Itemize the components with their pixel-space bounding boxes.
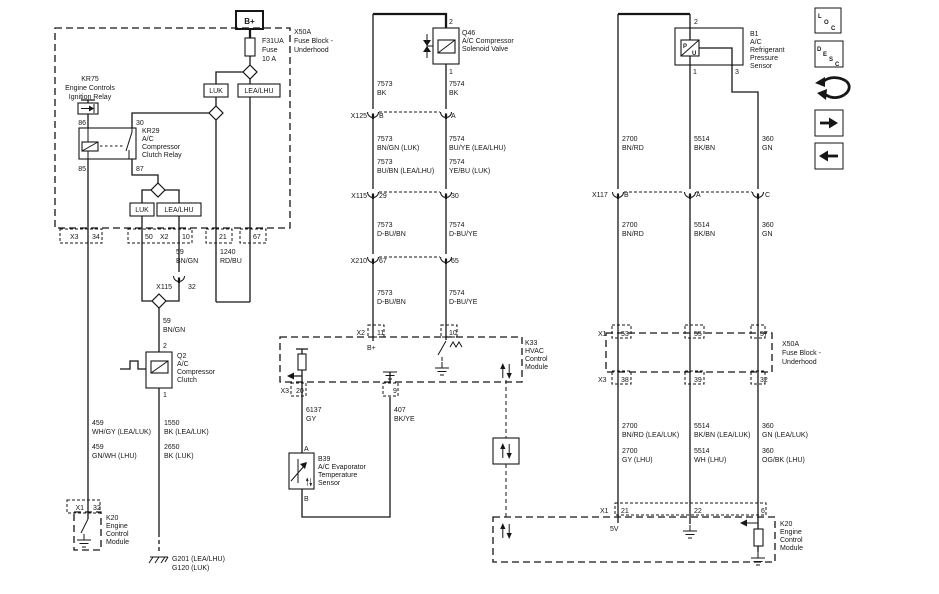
wire-label: BN/GN [176,258,198,265]
wire-label: 2700 [622,136,638,143]
fuse-block-name: X50A [782,341,799,348]
connector-label: X117 [592,192,608,199]
ecm-label: Module [106,539,129,546]
wire-label: BK/BN [694,145,715,152]
b1-label: Sensor [750,63,773,70]
wire-label: 7574 [449,222,465,229]
wire-label: 7574 [449,136,465,143]
hvac-label: Module [525,364,548,371]
connector-pin: 53 [621,331,629,338]
ground-label: G201 (LEA/LHU) [172,556,225,563]
wire-label: 7573 [377,222,393,229]
wire-label: 2700 [622,423,638,430]
ecm-label: Module [780,545,803,552]
wire-label: 2700 [622,448,638,455]
kr29-label: Clutch Relay [142,152,182,159]
wire-label: BU/BN (LEA/LHU) [377,168,434,175]
connector-pin: 29 [379,193,387,200]
fuse-block-name: Underhood [294,47,329,54]
connector-pin: C [765,192,770,199]
connector-pin: 67 [379,258,387,265]
component-pin: 3 [735,69,739,76]
q2-label: Q2 [177,353,186,360]
b1-letter: P [683,44,687,50]
fuse-label: 10 A [262,56,276,63]
connector-label: X1 [598,331,607,338]
connector-pin: A [696,192,701,199]
loc-letter: L [818,14,822,20]
connector-label: X210 [351,258,367,265]
kr29-label: A/C [142,136,154,143]
b1-label: A/C [750,39,762,46]
kr29-label: Compressor [142,144,181,151]
wire-label: 1550 [164,420,180,427]
wire-label: 6137 [306,407,322,414]
connector-pin: B [379,113,384,120]
fuse-label: F31UA [262,38,284,45]
wire-label: 459 [92,444,104,451]
fuse-block-name: Fuse Block - [782,350,822,357]
wire-label: D-BU/BN [377,299,406,306]
connector-pin: X2 [160,234,169,241]
component-pin: A [304,446,309,453]
wire-label: BK [449,90,459,97]
desc-letter: D [817,47,822,53]
wire-label: 407 [394,407,406,414]
hvac-resistor [298,354,306,370]
ecm-resistor [754,529,763,546]
wire-label: BN/RD (LEA/LUK) [622,432,679,439]
wire-label: 59 [176,249,184,256]
connector-pin: 6 [761,508,765,515]
kr75-label: Ignition Relay [69,94,112,101]
b39-label: Sensor [318,480,341,487]
wire-label: GN [762,145,773,152]
connector-pin: 21 [219,234,227,241]
variant-label: LEA/LHU [164,207,193,214]
battery-terminal-label: B+ [244,17,255,26]
connector-label: X3 [598,377,607,384]
connector-pin: 57 [760,331,768,338]
hvac-label: K33 [525,340,538,347]
connector-pin: 32 [93,505,101,512]
kr29-label: KR29 [142,128,160,135]
hvac-label: HVAC [525,348,544,355]
connector-pin: 30 [451,193,459,200]
schematic-canvas: B+ X50A Fuse Block - Underhood F31UA Fus… [0,0,939,594]
wire-label: WH (LHU) [694,457,726,464]
wire-label: 2650 [164,444,180,451]
wire-label: D-BU/YE [449,231,478,238]
connector-pin: 38 [621,377,629,384]
wire-label: 360 [762,222,774,229]
connector-pin: 34 [92,234,100,241]
variant-label: LUK [209,88,223,95]
connector-pin: 39 [694,377,702,384]
wire-label: GY [306,416,316,423]
q46-label: Solenoid Valve [462,46,508,53]
q46-label: A/C Compressor [462,38,514,45]
wire-label: D-BU/BN [377,231,406,238]
component-pin: 2 [694,19,698,26]
wire-label: 459 [92,420,104,427]
wire-label: BK (LUK) [164,453,194,460]
component-pin: 2 [163,343,167,350]
desc-letter: E [823,52,827,58]
wire-label: WH/GY (LEA/LUK) [92,429,151,436]
wire-label: GN (LEA/LUK) [762,432,808,439]
ecm-label: Engine [106,523,128,530]
wire-label: BK/YE [394,416,415,423]
b1-letter: U [692,51,696,57]
loc-letter: C [831,26,836,32]
q2-label: A/C [177,361,189,368]
ecm-label: K20 [780,521,793,528]
relay-pin-label: 30 [136,120,144,127]
wire-label: 1240 [220,249,236,256]
connector-pin: X3 [70,234,79,241]
variant-label: LUK [135,207,149,214]
hvac-label: Control [525,356,548,363]
component-pin: B [304,496,309,503]
component-pin: 1 [693,69,697,76]
desc-letter: C [835,62,840,68]
wire-label: GY (LHU) [622,457,653,464]
wire-label: BK (LEA/LUK) [164,429,209,436]
b39-label: A/C Evaporator [318,464,367,471]
wire-label: 5514 [694,423,710,430]
wire-label: GN/WH (LHU) [92,453,137,460]
connector-pin: 67 [253,234,261,241]
connector-label: X2 [356,330,365,337]
connector-label: X3 [280,388,289,395]
variant-label: LEA/LHU [244,88,273,95]
connector-pin: B [624,192,629,199]
wire-label: 7573 [377,81,393,88]
connector-pin: 21 [621,508,629,515]
canvas-background [0,0,939,594]
fuse-symbol [245,38,255,56]
loc-letter: O [824,20,829,26]
wire-label: 5514 [694,222,710,229]
connector-pin: 32 [760,377,768,384]
wire-label: 5514 [694,136,710,143]
connector-pin: A [451,113,456,120]
q2-label: Compressor [177,369,216,376]
wire-label: 7574 [449,290,465,297]
wire-label: BN/RD [622,231,644,238]
ecm-label: Control [780,537,803,544]
wire-label: BK [377,90,387,97]
wire-label: 5514 [694,448,710,455]
wire-label: 7573 [377,159,393,166]
wire-label: GN [762,231,773,238]
connector-label: X115 [351,193,367,200]
fuse-block-name: X50A [294,29,311,36]
wire-label: 360 [762,136,774,143]
wire-label: BK/BN (LEA/LUK) [694,432,750,439]
relay-pin-label: 85 [78,166,86,173]
ecm-label: Control [106,531,129,538]
b39-label: B39 [318,456,331,463]
connector-pin: 10 [449,330,457,337]
wire-label: BN/GN [163,327,185,334]
wire-label: BU/YE (LEA/LHU) [449,145,506,152]
fuse-block-name: Fuse Block - [294,38,334,45]
wire-label: 7574 [449,159,465,166]
wire-label: 2700 [622,222,638,229]
wire-label: YE/BU (LUK) [449,168,490,175]
b1-label: Refrigerant [750,47,785,54]
connector-pin: 22 [694,508,702,515]
connector-pin: 50 [145,234,153,241]
b1-label: Pressure [750,55,778,62]
wire-label: 360 [762,448,774,455]
wire-label: RD/BU [220,258,242,265]
wire-label: 7573 [377,136,393,143]
relay-pin-label: 86 [78,120,86,127]
kr75-label: Engine Controls [65,85,115,92]
component-pin: 1 [449,69,453,76]
wire-label: OG/BK (LHU) [762,457,805,464]
ground-label: G120 (LUK) [172,565,209,572]
serial-data-node-box [493,438,519,464]
connector-pin: 55 [694,331,702,338]
wire-label: D-BU/YE [449,299,478,306]
connector-pin: 32 [188,284,196,291]
connector-label: X1 [600,508,609,515]
connector-label: X1 [75,505,84,512]
wire-label: 7573 [377,290,393,297]
connector-pin: 9 [393,388,397,395]
component-pin: 1 [163,392,167,399]
wire-label: BN/GN (LUK) [377,145,419,152]
b39-label: Temperature [318,472,357,479]
wire-label: 360 [762,423,774,430]
q46-label: Q46 [462,30,475,37]
connector-pin: 20 [296,388,304,395]
reference-voltage-label: 5V [610,526,619,533]
connector-pin: 65 [451,258,459,265]
wiring-diagram-page: B+ X50A Fuse Block - Underhood F31UA Fus… [0,0,939,594]
connector-label: X125 [351,113,367,120]
q2-label: Clutch [177,377,197,384]
desc-letter: S [829,57,833,63]
component-pin: 2 [449,19,453,26]
b1-label: B1 [750,31,759,38]
ecm-label: K20 [106,515,119,522]
bplus-internal-label: B+ [367,345,376,352]
ecm-label: Engine [780,529,802,536]
relay-pin-label: 87 [136,166,144,173]
wire-label: BK/BN [694,231,715,238]
wire-label: BN/RD [622,145,644,152]
kr75-label: KR75 [81,76,99,83]
wire-label: 59 [163,318,171,325]
connector-label: X115 [156,284,172,291]
wire-label: 7574 [449,81,465,88]
fuse-block-name: Underhood [782,359,817,366]
connector-pin: 11 [377,330,384,337]
connector-pin: 10 [182,234,190,241]
fuse-label: Fuse [262,47,278,54]
